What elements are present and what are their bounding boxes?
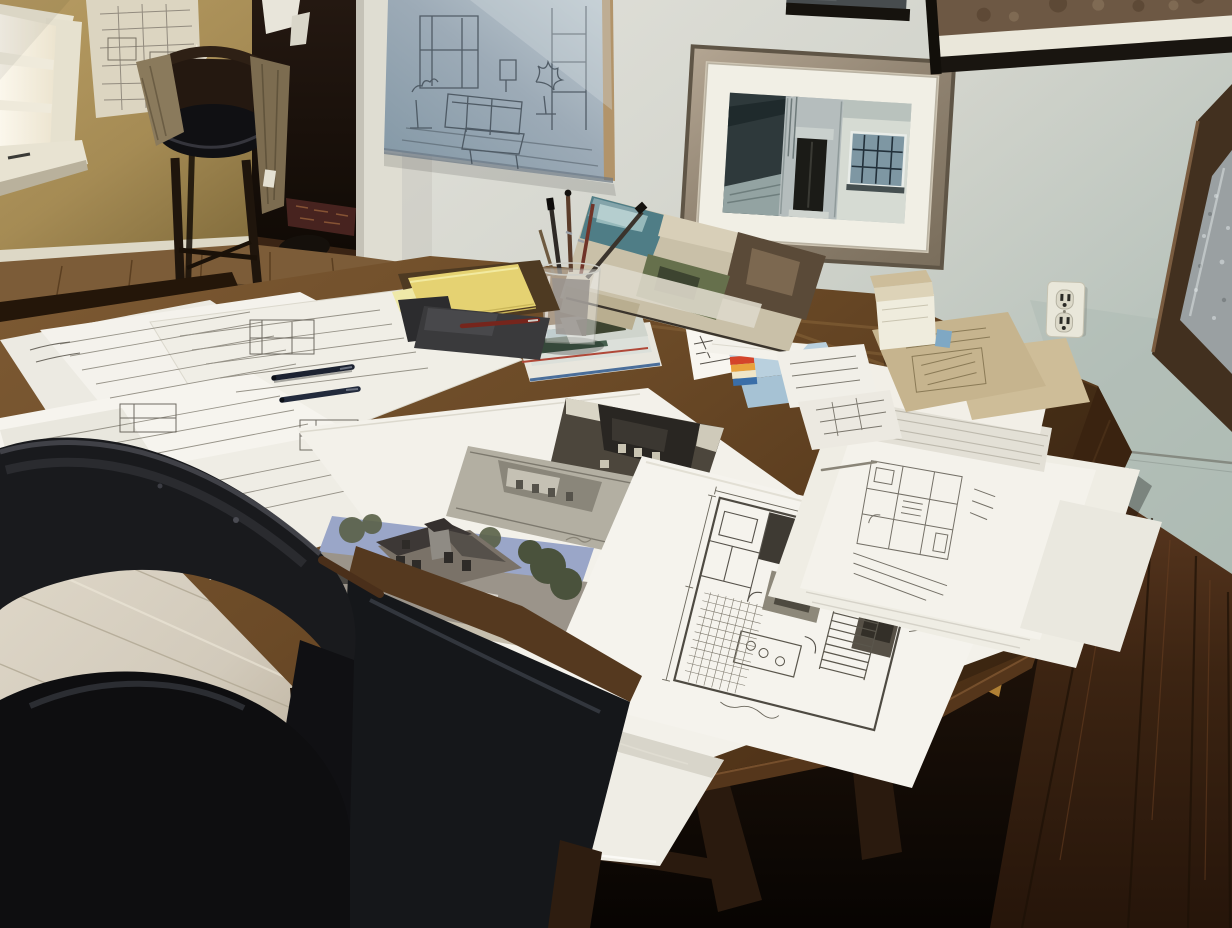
wall-sketch-panel bbox=[384, 0, 616, 196]
blue-box-label bbox=[730, 355, 758, 386]
scene bbox=[0, 0, 1232, 928]
photo-architects-worktable bbox=[0, 0, 1232, 928]
building-photo-art bbox=[723, 93, 912, 224]
power-outlet bbox=[1046, 281, 1088, 337]
